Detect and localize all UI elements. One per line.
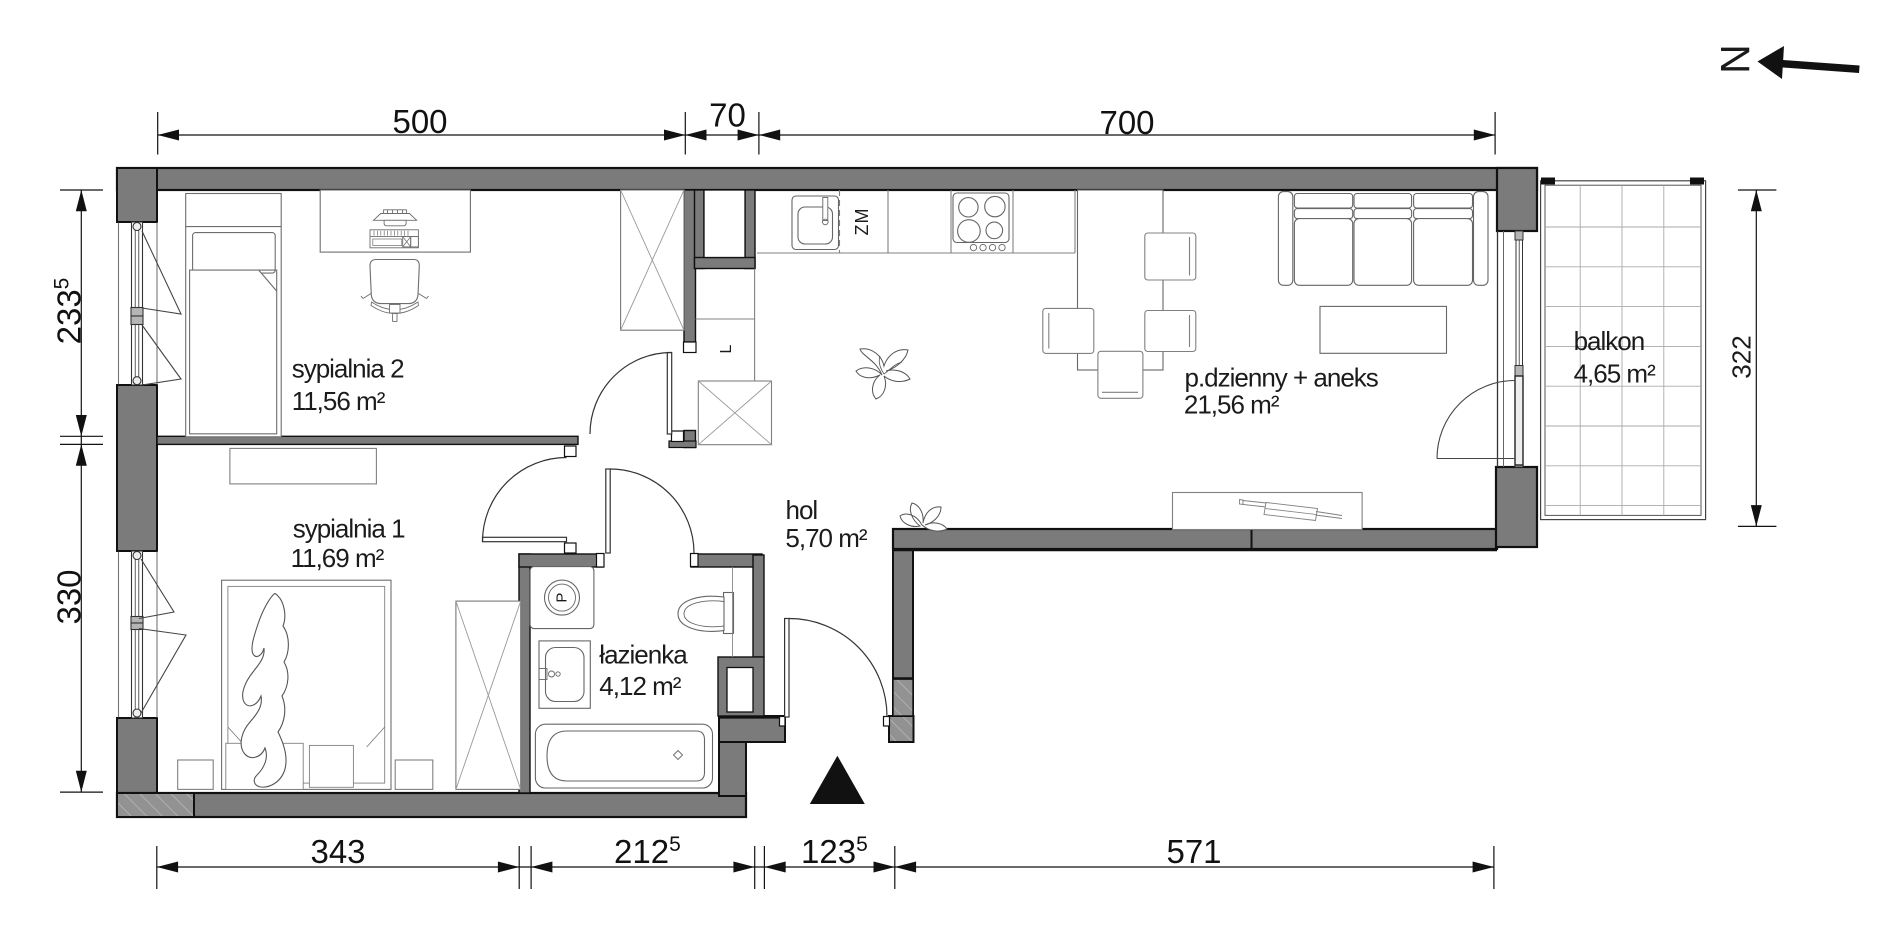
svg-text:sypialnia 2: sypialnia 2	[292, 354, 404, 384]
svg-text:L: L	[718, 344, 735, 353]
svg-text:11,56 m²: 11,56 m²	[292, 386, 386, 416]
svg-text:4,12 m²: 4,12 m²	[599, 671, 681, 701]
svg-text:ZM: ZM	[852, 208, 872, 236]
svg-text:sypialnia 1: sypialnia 1	[293, 514, 405, 544]
svg-text:70: 70	[709, 97, 746, 134]
svg-text:4,65 m²: 4,65 m²	[1574, 359, 1656, 389]
svg-text:P: P	[554, 593, 571, 603]
svg-text:łazienka: łazienka	[599, 640, 688, 670]
svg-text:balkon: balkon	[1574, 326, 1645, 356]
svg-text:330: 330	[51, 569, 88, 624]
svg-text:500: 500	[392, 103, 447, 140]
svg-text:p.dzienny + aneks: p.dzienny + aneks	[1185, 362, 1379, 392]
svg-text:N: N	[1712, 44, 1758, 74]
svg-text:343: 343	[310, 833, 365, 870]
svg-text:322: 322	[1727, 335, 1757, 378]
svg-text:21,56 m²: 21,56 m²	[1184, 390, 1280, 420]
svg-text:571: 571	[1166, 833, 1221, 870]
svg-text:hol: hol	[786, 495, 818, 525]
svg-text:11,69 m²: 11,69 m²	[291, 543, 385, 573]
svg-text:700: 700	[1099, 104, 1154, 141]
svg-text:5,70 m²: 5,70 m²	[785, 523, 867, 553]
